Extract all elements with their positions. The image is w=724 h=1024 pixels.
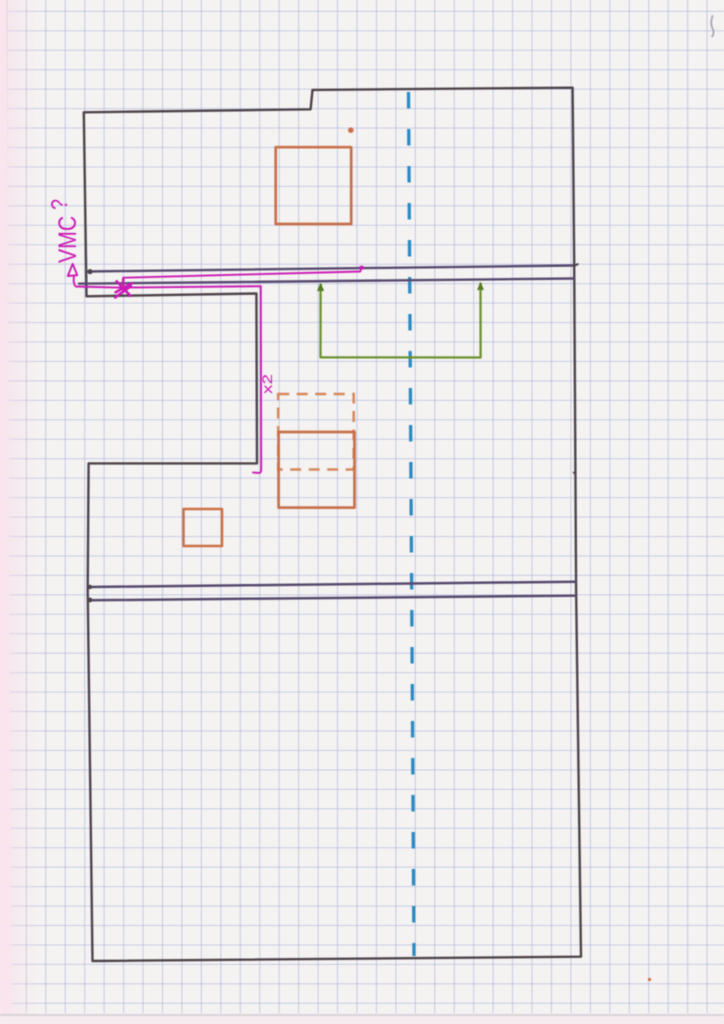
svg-text:x2: x2 bbox=[259, 374, 275, 394]
